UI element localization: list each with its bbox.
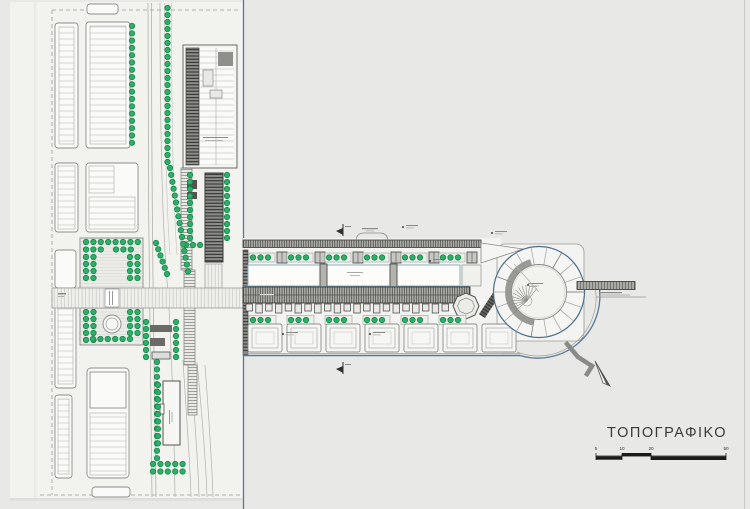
tree-icon (169, 172, 174, 177)
tree-icon (165, 96, 170, 101)
tree-icon (165, 110, 170, 115)
shop-unit (393, 304, 400, 313)
tree-icon (173, 333, 178, 338)
tree-icon (154, 448, 159, 453)
tree-icon (165, 68, 170, 73)
tree-icon (129, 74, 134, 79)
shop-unit (373, 304, 380, 313)
tree-icon (155, 419, 160, 424)
tree-icon (83, 247, 88, 252)
tree-icon (224, 193, 229, 198)
tree-icon (224, 228, 229, 233)
tree-icon (165, 103, 170, 108)
tree-icon (173, 200, 178, 205)
tree-icon (143, 319, 148, 324)
tree-icon (135, 239, 140, 244)
tree-icon (288, 255, 293, 260)
tree-icon (180, 469, 185, 474)
shop-unit (413, 304, 420, 313)
tree-icon (165, 82, 170, 87)
canopy (243, 240, 481, 248)
tree-icon (83, 309, 88, 314)
tree-icon (164, 271, 169, 276)
tree-icon (417, 255, 422, 260)
tree-icon (83, 261, 88, 266)
tree-icon (135, 309, 140, 314)
tree-icon (83, 337, 88, 342)
tree-icon (98, 247, 103, 252)
tree-icon (155, 441, 160, 446)
tree-icon (165, 47, 170, 52)
tree-icon (183, 255, 188, 260)
tree-icon (165, 75, 170, 80)
tree-icon (91, 275, 96, 280)
tree-icon (129, 133, 134, 138)
tree-icon (326, 317, 331, 322)
annotation-tick (491, 232, 493, 234)
tree-icon (296, 255, 301, 260)
tree-icon (83, 323, 88, 328)
tree-icon (341, 317, 346, 322)
tree-icon (224, 200, 229, 205)
tree-icon (175, 207, 180, 212)
station-building-north (183, 45, 237, 168)
tree-icon (127, 268, 132, 273)
tree-icon (129, 23, 134, 28)
tree-icon (372, 317, 377, 322)
tree-icon (120, 336, 125, 341)
tree-icon (127, 316, 132, 321)
tree-icon (165, 117, 170, 122)
tree-icon (158, 253, 163, 258)
scale-label-3: 50 (723, 446, 729, 451)
tree-icon (154, 359, 159, 364)
tree-icon (326, 255, 331, 260)
tree-icon (127, 261, 132, 266)
tree-icon (448, 255, 453, 260)
tree-icon (165, 89, 170, 94)
tree-icon (129, 126, 134, 131)
scale-label-1: 10 (619, 446, 625, 451)
tree-icon (113, 239, 118, 244)
tree-icon (127, 323, 132, 328)
annotation-tick (369, 333, 371, 335)
tree-icon (162, 265, 167, 270)
tree-icon (165, 33, 170, 38)
tree-icon (150, 461, 155, 466)
tree-icon (129, 31, 134, 36)
tree-icon (417, 317, 422, 322)
tree-icon (135, 275, 140, 280)
tree-icon (334, 255, 339, 260)
terminal-halls (248, 264, 481, 287)
tree-icon (154, 374, 159, 379)
tree-icon (187, 179, 192, 184)
tree-icon (190, 242, 195, 247)
tree-icon (379, 255, 384, 260)
tree-icon (187, 186, 192, 191)
tree-icon (91, 239, 96, 244)
tree-icon (128, 239, 133, 244)
tree-icon (155, 433, 160, 438)
tree-icon (91, 323, 96, 328)
shop-unit (324, 304, 331, 311)
south-building (160, 381, 180, 445)
tree-icon (224, 186, 229, 191)
tree-icon (91, 330, 96, 335)
shop-unit (305, 304, 312, 311)
tree-icon (224, 235, 229, 240)
tree-icon (173, 340, 178, 345)
annotation-tick (402, 226, 404, 228)
shop-unit (354, 304, 361, 313)
tree-icon (224, 207, 229, 212)
tree-icon (135, 261, 140, 266)
tree-icon (448, 317, 453, 322)
courtyard-bays (248, 324, 516, 352)
tree-icon (91, 309, 96, 314)
shop-unit (344, 304, 351, 311)
site-plan-drawing: ΤΟΠΟΓΡΑΦΙΚΟ 5 10 20 50 (0, 0, 750, 509)
annotation-tick (282, 333, 284, 335)
tree-icon (173, 469, 178, 474)
annotation-tick (429, 260, 431, 262)
tree-icon (91, 254, 96, 259)
tree-icon (83, 330, 88, 335)
main-terminal-building (243, 287, 470, 303)
shop-unit (315, 304, 322, 313)
tree-icon (170, 179, 175, 184)
tree-icon (187, 193, 192, 198)
tree-icon (90, 336, 95, 341)
tree-icon (156, 247, 161, 252)
shop-unit (383, 304, 390, 311)
tree-icon (153, 240, 158, 245)
tree-icon (165, 145, 170, 150)
tree-icon (364, 255, 369, 260)
tree-icon (135, 254, 140, 259)
tree-icon (143, 347, 148, 352)
shop-unit (422, 304, 429, 311)
drawing-title: ΤΟΠΟΓΡΑΦΙΚΟ (607, 425, 727, 441)
stair-pavilion (453, 293, 479, 319)
tree-icon (91, 268, 96, 273)
tree-icon (303, 317, 308, 322)
tree-icon (410, 317, 415, 322)
tree-icon (98, 239, 103, 244)
tree-icon (135, 316, 140, 321)
tree-icon (341, 255, 346, 260)
tree-icon (120, 239, 125, 244)
tree-icon (129, 67, 134, 72)
shop-unit (403, 304, 410, 311)
tree-icon (173, 326, 178, 331)
tree-icon (165, 61, 170, 66)
tree-icon (91, 261, 96, 266)
tree-icon (83, 316, 88, 321)
tree-icon (129, 104, 134, 109)
tree-icon (129, 118, 134, 123)
tree-icon (440, 255, 445, 260)
tree-icon (187, 235, 192, 240)
tree-icon (187, 207, 192, 212)
tree-icon (187, 228, 192, 233)
tree-icon (135, 330, 140, 335)
tree-icon (91, 247, 96, 252)
tree-icon (154, 367, 159, 372)
tree-icon (154, 456, 159, 461)
tree-icon (158, 461, 163, 466)
tree-icon (455, 317, 460, 322)
tree-icon (364, 317, 369, 322)
tree-icon (129, 140, 134, 145)
tree-icon (184, 262, 189, 267)
shop-unit (432, 304, 439, 313)
tree-icon (135, 323, 140, 328)
hall-connector (390, 264, 397, 287)
tree-icon (224, 221, 229, 226)
tree-icon (128, 247, 133, 252)
tree-icon (165, 19, 170, 24)
tree-icon (372, 255, 377, 260)
tree-icon (143, 333, 148, 338)
tree-icon (143, 326, 148, 331)
tree-icon (250, 255, 255, 260)
tree-icon (334, 317, 339, 322)
tree-icon (129, 60, 134, 65)
tree-icon (127, 336, 132, 341)
tree-icon (455, 255, 460, 260)
tree-icon (173, 461, 178, 466)
scale-label-2: 20 (648, 446, 654, 451)
tree-icon (83, 239, 88, 244)
tree-icon (165, 152, 170, 157)
tree-icon (165, 54, 170, 59)
tree-icon (250, 317, 255, 322)
tree-icon (187, 172, 192, 177)
tree-icon (224, 172, 229, 177)
hall-connector (320, 264, 327, 287)
tree-icon (83, 268, 88, 273)
tree-icon (171, 186, 176, 191)
tree-icon (129, 45, 134, 50)
tree-icon (165, 12, 170, 17)
tree-icon (379, 317, 384, 322)
tree-icon (402, 317, 407, 322)
tree-icon (178, 227, 183, 232)
tree-icon (127, 254, 132, 259)
tree-icon (155, 397, 160, 402)
tree-icon (177, 221, 182, 226)
shop-unit (275, 304, 282, 313)
shop-unit (334, 304, 341, 313)
tree-icon (91, 316, 96, 321)
tree-icon (165, 138, 170, 143)
tree-icon (127, 330, 132, 335)
tree-icon (155, 382, 160, 387)
tree-icon (187, 221, 192, 226)
shop-unit (364, 304, 371, 311)
tree-icon (167, 165, 172, 170)
tree-icon (165, 159, 170, 164)
tree-icon (265, 317, 270, 322)
tree-icon (155, 412, 160, 417)
tree-icon (303, 255, 308, 260)
tree-icon (143, 340, 148, 345)
tree-icon (197, 242, 202, 247)
shop-unit (295, 304, 302, 313)
tree-icon (129, 82, 134, 87)
pedestrian-walkway (52, 288, 243, 308)
tree-icon (165, 26, 170, 31)
tree-icon (135, 268, 140, 273)
tree-icon (224, 179, 229, 184)
tree-icon (173, 347, 178, 352)
annotation-tick (527, 284, 529, 286)
tree-icon (83, 275, 88, 280)
tree-icon (265, 255, 270, 260)
shop-unit (442, 304, 449, 311)
tree-icon (172, 193, 177, 198)
tree-icon (185, 269, 190, 274)
tree-icon (187, 200, 192, 205)
tree-icon (127, 275, 132, 280)
tree-icon (155, 426, 160, 431)
tree-icon (165, 469, 170, 474)
tree-icon (181, 241, 186, 246)
shop-unit (285, 304, 292, 311)
tree-icon (143, 354, 148, 359)
tree-icon (165, 40, 170, 45)
tree-icon (127, 309, 132, 314)
tree-icon (410, 255, 415, 260)
tree-icon (113, 247, 118, 252)
tree-icon (83, 254, 88, 259)
tree-icon (440, 317, 445, 322)
tree-icon (129, 89, 134, 94)
tree-icon (182, 248, 187, 253)
tree-icon (288, 317, 293, 322)
shop-unit (256, 304, 262, 313)
tree-icon (187, 214, 192, 219)
tree-icon (129, 96, 134, 101)
tree-icon (402, 255, 407, 260)
tree-icon (113, 336, 118, 341)
topographic-site-plan: ΤΟΠΟΓΡΑΦΙΚΟ 5 10 20 50 (0, 0, 750, 509)
tree-icon (258, 255, 263, 260)
tree-icon (180, 461, 185, 466)
tree-icon (98, 336, 103, 341)
tree-icon (173, 319, 178, 324)
tree-icon (176, 214, 181, 219)
tree-icon (165, 5, 170, 10)
shop-unit (266, 304, 273, 311)
scale-label-0: 5 (595, 446, 598, 451)
tree-icon (258, 317, 263, 322)
tree-icon (105, 336, 110, 341)
tree-icon (165, 461, 170, 466)
tree-icon (129, 111, 134, 116)
tree-icon (179, 234, 184, 239)
tree-icon (150, 469, 155, 474)
tree-icon (160, 259, 165, 264)
shop-unit (246, 304, 253, 311)
tree-icon (129, 53, 134, 58)
tree-icon (158, 469, 163, 474)
tree-icon (155, 390, 160, 395)
tree-icon (165, 124, 170, 129)
tree-icon (106, 239, 111, 244)
tree-icon (296, 317, 301, 322)
tree-icon (129, 38, 134, 43)
tree-icon (165, 131, 170, 136)
tree-icon (155, 404, 160, 409)
tree-icon (224, 214, 229, 219)
tree-icon (173, 354, 178, 359)
tree-icon (121, 247, 126, 252)
